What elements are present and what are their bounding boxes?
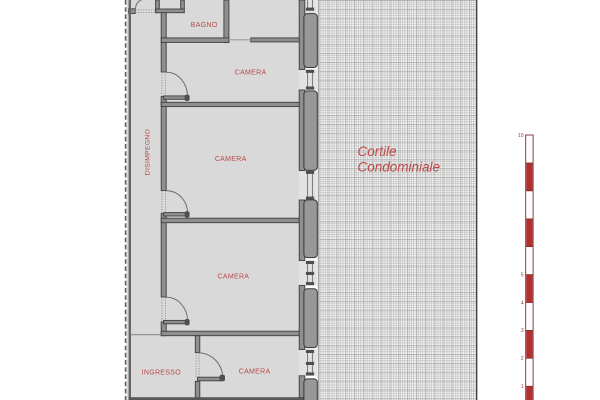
svg-text:INGRESSO: INGRESSO	[142, 370, 182, 377]
svg-text:CAMERA: CAMERA	[215, 156, 247, 163]
svg-text:CAMERA: CAMERA	[218, 273, 250, 280]
svg-text:1: 1	[521, 384, 524, 390]
svg-text:5: 5	[521, 272, 524, 278]
svg-text:2: 2	[521, 356, 524, 362]
svg-text:DISIMPEGNO: DISIMPEGNO	[145, 129, 152, 175]
svg-text:Condominiale: Condominiale	[358, 159, 441, 174]
svg-text:Cortile: Cortile	[358, 144, 397, 159]
svg-text:CAMERA: CAMERA	[235, 69, 267, 76]
svg-text:CAMERA: CAMERA	[239, 368, 271, 375]
svg-text:10: 10	[518, 133, 524, 139]
svg-text:BAGNO: BAGNO	[191, 22, 218, 29]
svg-text:3: 3	[521, 328, 524, 334]
svg-text:4: 4	[521, 300, 524, 306]
